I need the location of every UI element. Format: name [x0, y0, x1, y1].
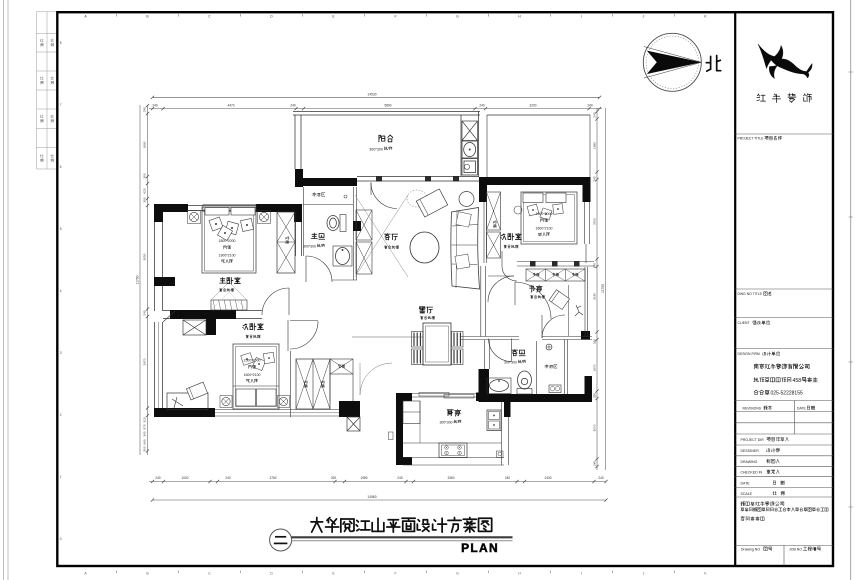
svg-text:2430: 2430	[544, 476, 551, 480]
svg-text:240: 240	[143, 107, 147, 112]
svg-text:300: 300	[143, 197, 147, 202]
svg-text:I: I	[581, 572, 582, 576]
svg-text:620: 620	[143, 188, 147, 193]
svg-text:840: 840	[592, 263, 596, 268]
svg-text:SCALE: SCALE	[741, 492, 753, 496]
svg-text:Drawing NO: Drawing NO	[741, 548, 760, 552]
svg-text:300*300: 300*300	[504, 360, 517, 364]
svg-text:1890: 1890	[592, 142, 596, 149]
svg-text:570: 570	[143, 424, 147, 429]
svg-text:240: 240	[592, 176, 596, 181]
svg-text:6: 6	[60, 165, 62, 169]
svg-text:340: 340	[143, 431, 147, 436]
svg-text:0: 0	[60, 537, 62, 541]
svg-text:025-52228155: 025-52228155	[771, 391, 803, 397]
svg-text:240: 240	[143, 310, 147, 315]
svg-text:3700: 3700	[592, 218, 596, 225]
svg-text:2: 2	[60, 413, 62, 417]
svg-text:300*300: 300*300	[369, 147, 383, 151]
svg-text:300: 300	[143, 446, 147, 451]
svg-text:DESIGNER: DESIGNER	[741, 449, 760, 453]
svg-text:3360: 3360	[447, 476, 454, 480]
svg-text:14560: 14560	[367, 495, 376, 499]
svg-text:4: 4	[60, 289, 62, 293]
svg-text:8: 8	[60, 41, 62, 45]
svg-text:J: J	[643, 15, 645, 19]
svg-text:11790: 11790	[601, 284, 605, 293]
svg-text:300: 300	[143, 173, 147, 178]
svg-text:660: 660	[143, 439, 147, 444]
svg-text:DESIGN FIRM: DESIGN FIRM	[738, 352, 760, 356]
svg-text:3070: 3070	[592, 424, 596, 431]
svg-text:240: 240	[587, 103, 593, 107]
svg-text:300*300: 300*300	[303, 244, 316, 248]
svg-text:310: 310	[143, 417, 147, 422]
svg-text:1980: 1980	[360, 476, 367, 480]
svg-text:240: 240	[152, 103, 158, 107]
svg-text:REVISIONS: REVISIONS	[743, 407, 762, 411]
svg-text:3140: 3140	[592, 293, 596, 300]
svg-text:1900*2100: 1900*2100	[219, 254, 236, 258]
svg-text:F: F	[394, 15, 396, 19]
svg-text:CHECKED IN: CHECKED IN	[741, 471, 763, 475]
svg-text:458: 458	[793, 378, 802, 384]
svg-text:240: 240	[598, 476, 604, 480]
svg-text:3200: 3200	[529, 103, 536, 107]
svg-text:240: 240	[290, 103, 296, 107]
svg-text:3760: 3760	[269, 476, 276, 480]
svg-text:7: 7	[60, 103, 62, 107]
svg-text:300*300: 300*300	[439, 420, 452, 424]
svg-text:240: 240	[592, 112, 596, 117]
svg-text:PROJECT DIR: PROJECT DIR	[741, 438, 765, 442]
svg-text:PLAN: PLAN	[461, 541, 499, 555]
svg-text:JOB NO: JOB NO	[789, 548, 802, 552]
svg-text:240: 240	[479, 103, 485, 107]
svg-text:DATE: DATE	[741, 482, 751, 486]
svg-text:1: 1	[60, 475, 62, 479]
svg-text:DWG NO TITLE: DWG NO TITLE	[738, 292, 763, 296]
svg-text:1500*2000: 1500*2000	[244, 359, 261, 363]
svg-text:1890: 1890	[143, 141, 147, 148]
svg-text:14530: 14530	[367, 93, 376, 97]
svg-text:G: G	[456, 15, 459, 19]
svg-text:3: 3	[60, 351, 62, 355]
svg-text:2970: 2970	[143, 358, 147, 365]
svg-text:F: F	[394, 572, 396, 576]
svg-text:CLIENT: CLIENT	[738, 321, 750, 325]
svg-text:DRAWING: DRAWING	[741, 460, 758, 464]
svg-text:4470: 4470	[227, 103, 234, 107]
svg-text:5: 5	[60, 227, 62, 231]
svg-text:11790: 11790	[135, 275, 139, 284]
svg-text:J: J	[643, 572, 645, 576]
svg-text:5890: 5890	[384, 103, 391, 107]
svg-text:DATE: DATE	[797, 407, 807, 411]
svg-text:1000: 1000	[181, 476, 188, 480]
svg-text:240: 240	[225, 476, 231, 480]
svg-text:G: G	[456, 572, 459, 576]
svg-text:320: 320	[592, 393, 596, 398]
svg-text:I: I	[581, 15, 582, 19]
svg-text:3050: 3050	[143, 253, 147, 260]
svg-text:1500*2000: 1500*2000	[536, 212, 553, 216]
svg-text:320: 320	[592, 339, 596, 344]
svg-text:1800*2000: 1800*2000	[219, 239, 236, 243]
svg-text:240: 240	[397, 476, 403, 480]
svg-text:1670: 1670	[592, 364, 596, 371]
svg-text:240: 240	[155, 476, 161, 480]
svg-text:240: 240	[505, 476, 511, 480]
svg-text:PROJECT TITLE: PROJECT TITLE	[738, 137, 765, 141]
svg-text:1600*2100: 1600*2100	[244, 373, 261, 377]
svg-text:240: 240	[592, 461, 596, 466]
svg-text:1600*2100: 1600*2100	[536, 227, 553, 231]
svg-text:320: 320	[331, 476, 337, 480]
